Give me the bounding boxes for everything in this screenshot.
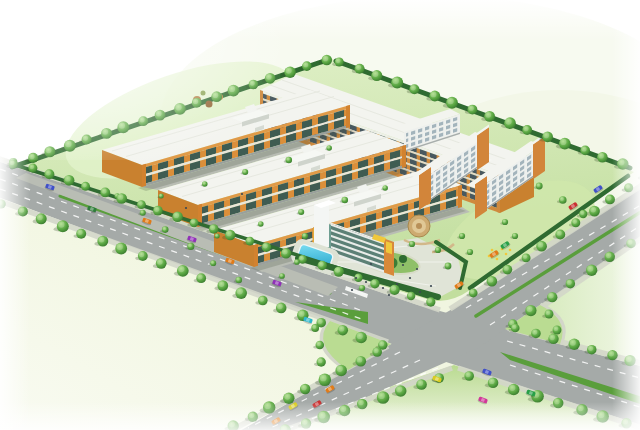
vignette-top-left	[0, 0, 280, 160]
rendering-canvas	[0, 0, 640, 430]
vignette-right	[612, 0, 640, 430]
person	[185, 207, 187, 209]
person	[351, 289, 353, 291]
person	[430, 285, 432, 287]
flower	[505, 253, 508, 256]
island-bush	[399, 255, 407, 263]
person	[419, 291, 421, 293]
person	[365, 281, 367, 283]
person	[382, 287, 384, 289]
person	[402, 264, 404, 266]
garden-circle-center	[416, 223, 422, 229]
person	[396, 283, 398, 285]
flower	[496, 258, 499, 261]
aerial-rendering	[0, 0, 640, 430]
flower	[491, 249, 494, 252]
person	[297, 179, 299, 181]
person	[241, 193, 243, 195]
vignette-bottom	[0, 402, 640, 430]
person	[370, 263, 372, 265]
admin-yellow-panel	[386, 241, 392, 254]
person	[388, 294, 390, 296]
person	[409, 277, 411, 279]
person	[416, 268, 418, 270]
flower	[509, 249, 512, 252]
person	[355, 277, 357, 279]
